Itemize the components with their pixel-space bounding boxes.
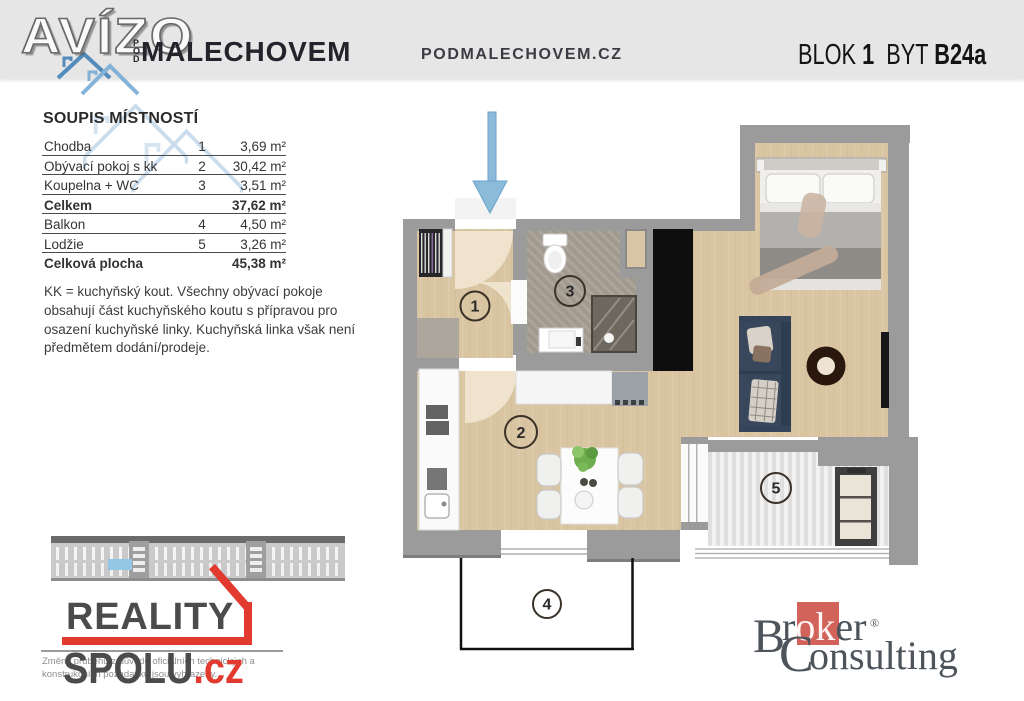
svg-text:3: 3 bbox=[566, 284, 575, 301]
svg-text:1: 1 bbox=[471, 299, 480, 316]
svg-text:2: 2 bbox=[517, 425, 526, 442]
svg-text:5: 5 bbox=[772, 481, 781, 498]
svg-text:4: 4 bbox=[543, 597, 552, 614]
